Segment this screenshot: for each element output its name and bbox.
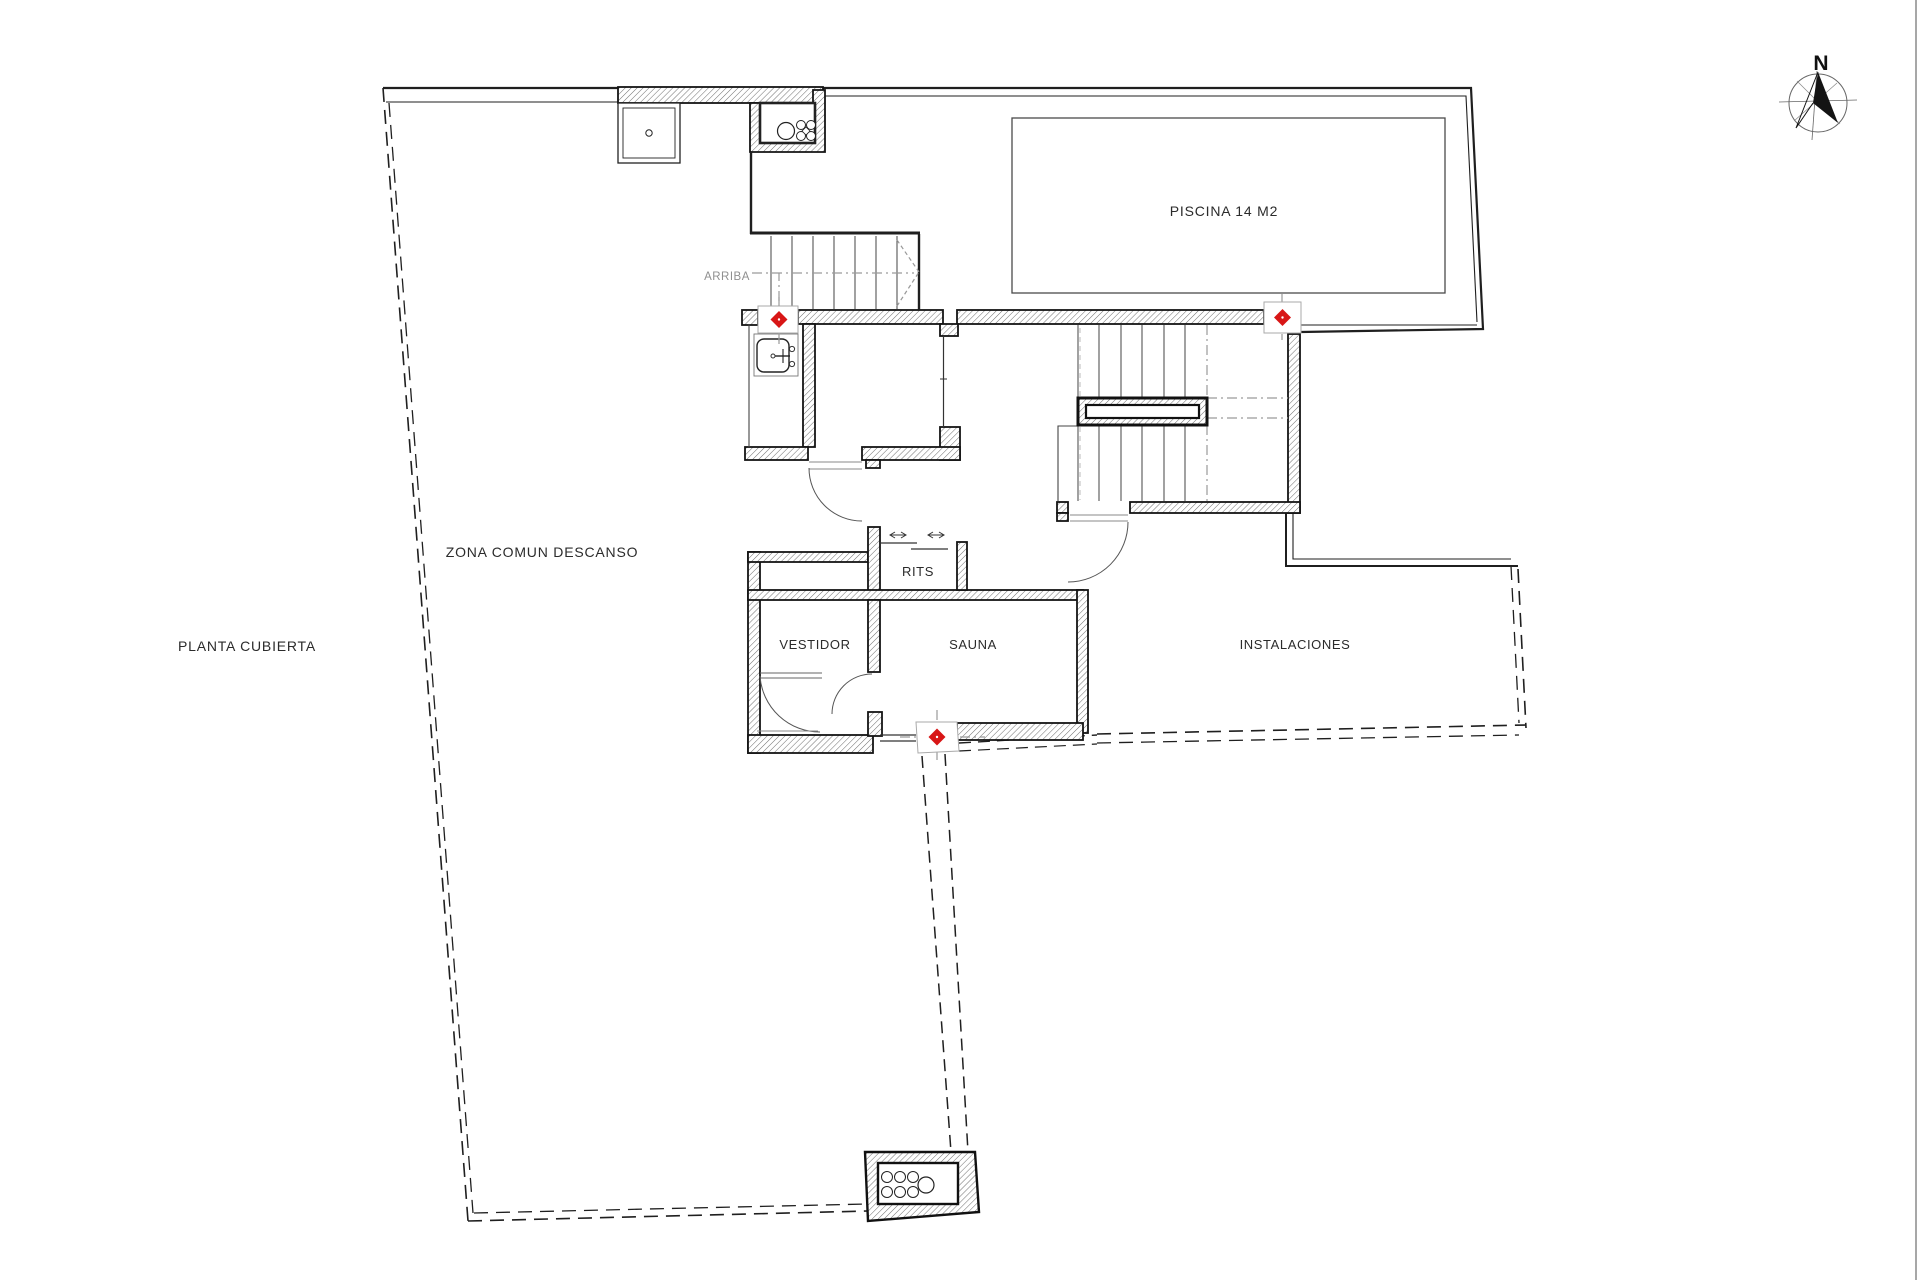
wall-kitchenette-bottom-a bbox=[745, 447, 808, 460]
page-title: PLANTA CUBIERTA bbox=[178, 638, 316, 654]
room-label-rits: RITS bbox=[902, 564, 934, 579]
wall-circles-room-top bbox=[748, 552, 868, 562]
room-label-sauna: SAUNA bbox=[949, 637, 997, 652]
room-label-vestidor: VESTIDOR bbox=[779, 637, 850, 652]
wall-vestidor-bottom bbox=[748, 735, 873, 753]
wall-elevator-right-top bbox=[940, 324, 958, 336]
wall-top bbox=[618, 87, 823, 103]
pillar bbox=[866, 460, 880, 468]
wall-rooms-left bbox=[748, 552, 760, 753]
wall-mid-b bbox=[957, 310, 1264, 324]
stair-label-arriba: ARRIBA bbox=[704, 271, 750, 283]
wall-mid-left bbox=[742, 310, 758, 325]
wall-stair-bottom bbox=[1130, 502, 1300, 513]
wall-sauna-right bbox=[1077, 590, 1088, 733]
wall-sauna-lobby bbox=[868, 600, 880, 672]
wall-stair-right bbox=[1288, 334, 1300, 513]
wall-elevator-left bbox=[803, 324, 815, 447]
wall-mid-rooms bbox=[748, 590, 1083, 600]
wall-corner-piece bbox=[868, 712, 882, 736]
wall-rits-left bbox=[868, 527, 880, 600]
wall-kitchenette-bottom-b bbox=[862, 447, 960, 460]
room-label-piscina: PISCINA 14 M2 bbox=[1170, 203, 1278, 219]
compass-north-label: N bbox=[1813, 52, 1828, 75]
floor-plan-canvas: N PLANTA CUBIERTA ZONA COMUN DESCANSO PI… bbox=[0, 0, 1920, 1280]
room-label-instalaciones: INSTALACIONES bbox=[1240, 637, 1351, 652]
wall-rits-right bbox=[957, 542, 967, 590]
wall-stair-bottom-left bbox=[1057, 502, 1068, 513]
room-label-zona-comun: ZONA COMUN DESCANSO bbox=[446, 544, 639, 560]
stair-handrail bbox=[1078, 398, 1207, 425]
wall-mid-a bbox=[798, 310, 943, 324]
vent-box-bottom bbox=[865, 1152, 979, 1221]
wall-stair-step bbox=[1057, 513, 1068, 521]
vent-box-top bbox=[760, 103, 816, 143]
skylight bbox=[618, 103, 680, 163]
